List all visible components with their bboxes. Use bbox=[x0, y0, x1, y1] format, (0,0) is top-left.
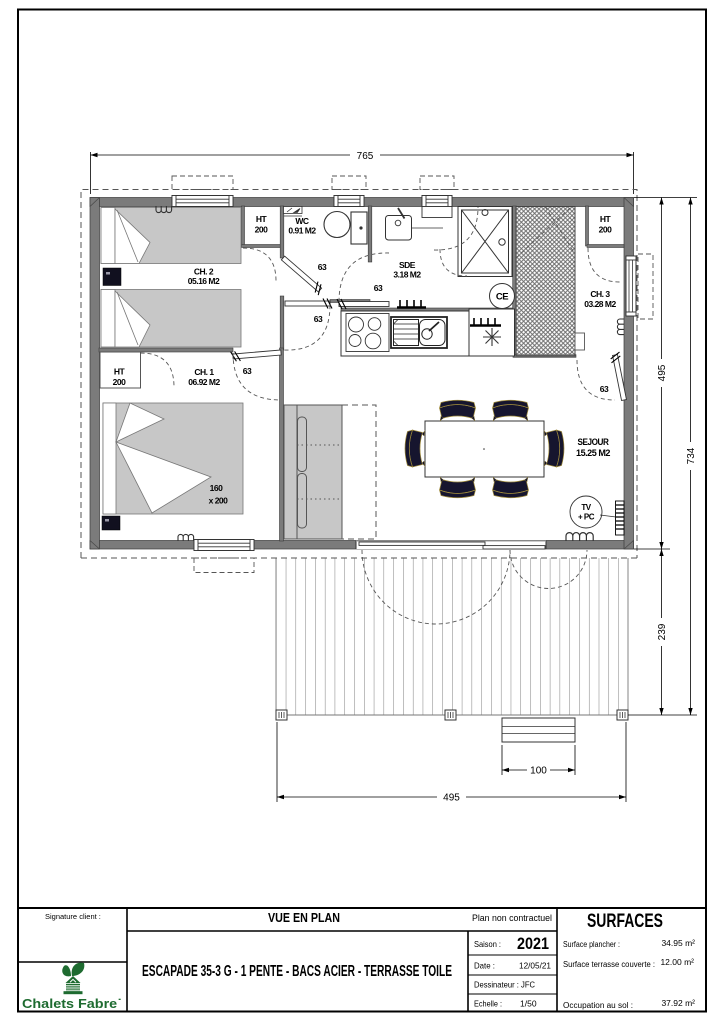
svg-text:1/50: 1/50 bbox=[520, 999, 537, 1009]
svg-text:34.95 m²: 34.95 m² bbox=[661, 938, 695, 948]
svg-text:200: 200 bbox=[255, 225, 268, 235]
svg-text:239: 239 bbox=[657, 623, 668, 640]
svg-text:12/05/21: 12/05/21 bbox=[519, 961, 551, 971]
svg-text:Plan non contractuel: Plan non contractuel bbox=[472, 913, 552, 923]
svg-text:Date :: Date : bbox=[474, 961, 495, 971]
svg-text:VUE EN PLAN: VUE EN PLAN bbox=[268, 911, 340, 925]
svg-text:Surface terrasse couverte :: Surface terrasse couverte : bbox=[563, 960, 655, 969]
svg-text:734: 734 bbox=[686, 447, 697, 464]
svg-text:100: 100 bbox=[530, 766, 547, 777]
svg-text:+ PC: + PC bbox=[578, 513, 595, 522]
svg-text:15.25 M2: 15.25 M2 bbox=[576, 448, 610, 459]
svg-text:Chalets Fabre˙: Chalets Fabre˙ bbox=[22, 997, 122, 1011]
svg-text:63: 63 bbox=[243, 366, 252, 376]
svg-text:765: 765 bbox=[357, 151, 374, 162]
svg-text:TV: TV bbox=[581, 503, 591, 512]
svg-text:37.92 m²: 37.92 m² bbox=[661, 998, 695, 1008]
svg-text:63: 63 bbox=[600, 384, 609, 394]
svg-text:CH. 2: CH. 2 bbox=[194, 267, 214, 277]
svg-text:05.16 M2: 05.16 M2 bbox=[188, 276, 220, 286]
svg-text:Surface plancher :: Surface plancher : bbox=[563, 940, 620, 949]
svg-text:63: 63 bbox=[374, 283, 383, 293]
svg-text:x 200: x 200 bbox=[209, 496, 229, 506]
svg-text:200: 200 bbox=[599, 225, 612, 235]
svg-text:495: 495 bbox=[443, 793, 460, 804]
svg-text:2021: 2021 bbox=[517, 935, 549, 953]
svg-text:SURFACES: SURFACES bbox=[587, 911, 663, 932]
svg-text:HT: HT bbox=[114, 367, 126, 377]
svg-text:Echelle :: Echelle : bbox=[474, 999, 502, 1009]
svg-text:03.28 M2: 03.28 M2 bbox=[584, 299, 616, 309]
svg-text:CH. 3: CH. 3 bbox=[590, 289, 610, 299]
svg-text:Signature client :: Signature client : bbox=[45, 912, 101, 921]
svg-text:495: 495 bbox=[657, 364, 668, 381]
svg-text:HT: HT bbox=[256, 214, 268, 224]
svg-text:ESCAPADE 35-3 G - 1 PENTE - BA: ESCAPADE 35-3 G - 1 PENTE - BACS ACIER -… bbox=[142, 963, 452, 980]
svg-text:HT: HT bbox=[600, 214, 612, 224]
svg-text:WC: WC bbox=[295, 216, 309, 226]
svg-text:63: 63 bbox=[318, 262, 327, 272]
svg-text:CH. 1: CH. 1 bbox=[194, 367, 214, 377]
svg-text:CE: CE bbox=[496, 292, 508, 303]
svg-text:3.18 M2: 3.18 M2 bbox=[393, 270, 421, 280]
svg-text:Saison :: Saison : bbox=[474, 939, 501, 949]
svg-text:SEJOUR: SEJOUR bbox=[578, 437, 610, 448]
svg-text:200: 200 bbox=[113, 377, 126, 387]
svg-text:160: 160 bbox=[210, 483, 223, 493]
svg-text:12.00 m²: 12.00 m² bbox=[660, 957, 694, 967]
svg-text:63: 63 bbox=[314, 314, 323, 324]
svg-text:06.92 M2: 06.92 M2 bbox=[188, 377, 220, 387]
svg-text:Occupation au sol :: Occupation au sol : bbox=[563, 1001, 633, 1010]
svg-text:SDE: SDE bbox=[399, 260, 416, 270]
svg-text:Dessinateur : JFC: Dessinateur : JFC bbox=[474, 980, 535, 990]
svg-text:0.91 M2: 0.91 M2 bbox=[288, 226, 316, 236]
